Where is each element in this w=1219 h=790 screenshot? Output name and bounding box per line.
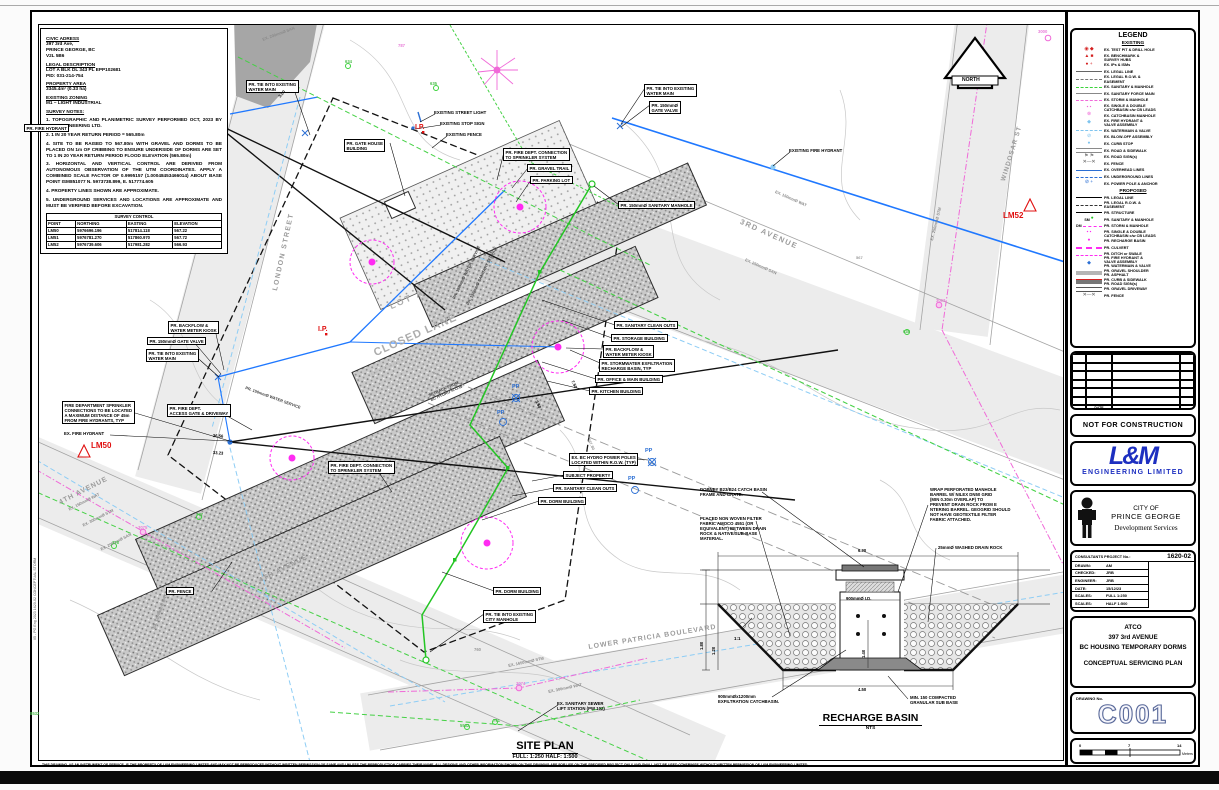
legend-symbol-icon: ● +	[1076, 62, 1102, 68]
plot-stamp: 05 - PG Eng 2023 1620-02 CONCEPTUAL STOR…	[33, 558, 37, 640]
revision-empty-cell	[1086, 371, 1112, 380]
revision-empty-cell	[1112, 380, 1180, 389]
legend-item-label: EX. TEST PIT & DRILL HOLE	[1104, 48, 1155, 52]
detail-dimension: 4.50	[858, 688, 866, 693]
plan-label: 5532	[460, 724, 469, 729]
note-line: PID: 031-214-754	[46, 73, 222, 79]
plan-label: PR. PARKING LOT	[530, 176, 573, 184]
north-label: NORTH	[962, 77, 980, 83]
plan-label: PR. 150mmØ GATE VALVE	[147, 337, 206, 345]
legend-item: PR. CURB & SIDEWALK PR. ROAD SIGN(s)	[1076, 278, 1192, 286]
plan-label: 787	[398, 44, 405, 49]
legend-item-label: EX. FENCE	[1104, 162, 1124, 166]
legend-item-label: EX. UNDERGROUND LINES	[1104, 175, 1153, 179]
plan-label: PR. BACKFLOW & WATER METER KIOSK	[603, 345, 654, 358]
city-mascot-icon	[1076, 496, 1098, 540]
revision-header-cell: NO.	[1072, 405, 1086, 410]
detail-callout: PLACED NON WOVEN FILTER FABRIC AMOCO 455…	[700, 516, 766, 541]
legend-symbol-icon: ◆	[1076, 120, 1102, 126]
legend-item-label: EX. SANITARY & MANHOLE	[1104, 85, 1154, 89]
legend-symbol-icon: ▪ ▪	[1076, 231, 1102, 237]
survey-note: 1. TOPOGRAPHIC AND PLANIMETRIC SURVEY PE…	[46, 117, 222, 129]
consultant-row: DRAWN:AM	[1072, 562, 1148, 570]
legend-symbol-icon: ●	[1076, 141, 1102, 147]
legend-item-label: PR. SINGLE & DOUBLE CATCHBASIN c/w CB LE…	[1104, 230, 1156, 238]
legend-item-label: PR. STRUCTURE	[1104, 211, 1134, 215]
plan-label: 3003	[936, 299, 945, 304]
revision-empty-cell	[1180, 363, 1194, 372]
detail-callout: WRAP PERFORATED MANHOLE BARREL W/ NILEX …	[930, 487, 1010, 522]
legend-item: ▪ ▪EX. SINGLE & DOUBLE CATCHBASIN c/w CB…	[1076, 104, 1192, 112]
revision-empty-cell	[1086, 397, 1112, 406]
revision-empty-cell	[1112, 388, 1180, 397]
revision-empty-cell	[1086, 380, 1112, 389]
city-line2: PRINCE GEORGE	[1102, 512, 1190, 521]
plan-label: 638	[903, 330, 910, 335]
plan-label: PR. SANITARY CLEAN OUTS	[614, 321, 678, 329]
consultants-rows: DRAWN:AMCHECKED:JRBENGINEER:JRBDATE:15/1…	[1072, 562, 1149, 608]
legend-item: ◉ ◆EX. TEST PIT & DRILL HOLE	[1076, 47, 1192, 53]
legend-symbol-icon	[1076, 195, 1102, 201]
plan-label: PR. 150mmØ GATE VALVE	[649, 101, 681, 114]
not-for-construction-stamp: NOT FOR CONSTRUCTION	[1070, 414, 1196, 437]
plan-label: 778	[112, 541, 119, 546]
legend-item-label: PR. GRAVEL SHOULDER PR. ASPHALT	[1104, 269, 1149, 277]
plan-label: 777	[196, 513, 203, 518]
legend-item: SM●PR. SANITARY & MANHOLE	[1076, 217, 1192, 223]
legend-item-label: PR. STORM & MANHOLE	[1104, 224, 1149, 228]
legend-item: PR. CULVERT	[1076, 245, 1192, 251]
legend-symbol-icon	[1076, 77, 1102, 83]
legend-item-label: PR. SANITARY & MANHOLE	[1104, 218, 1154, 222]
legend-existing-heading: EXISTING	[1072, 41, 1194, 46]
legend-symbol-icon: ◆	[1076, 261, 1102, 267]
plan-label: EXISTING STOP SIGN	[440, 121, 485, 126]
revision-empty-cell	[1180, 371, 1194, 380]
plan-label: PP	[497, 410, 504, 416]
plan-label: PR. DORM BUILDING	[493, 587, 541, 595]
consultant-row: DATE:15/12/23	[1072, 585, 1148, 593]
revision-empty-cell	[1180, 397, 1194, 406]
revision-empty-cell	[1072, 354, 1086, 363]
legend-item-label: EX. STORM & MANHOLE	[1104, 98, 1148, 102]
drawing-number: C001	[1072, 701, 1194, 727]
legend-item-label: EX. POWER POLE & ANCHOR	[1104, 182, 1158, 186]
plan-label: PR. OFFICE & MAIN BUILDING	[595, 375, 663, 383]
detail-dimension: 1:1	[734, 636, 741, 641]
legend-item: ✕—✕EX. FENCE	[1076, 161, 1192, 167]
legend-symbol-icon: ▲ ■	[1076, 55, 1102, 61]
legend-symbol-icon: ⊘ +	[1076, 181, 1102, 187]
legend-item: EX. WATERMAIN & VALVE	[1076, 128, 1192, 134]
revision-empty-cell	[1112, 371, 1180, 380]
plan-label: 3074	[516, 682, 525, 687]
legend-item-label: EX. FIRE HYDRANT & VALVE ASSEMBLY	[1104, 119, 1143, 127]
drawing-number-box: DRAWING No. C001	[1070, 692, 1196, 734]
legend-proposed-list: PR. LEGAL LINEPR. LEGAL R.O.W. & EASEMEN…	[1072, 195, 1194, 299]
detail-callout: 25mmØ WASHED DRAIN ROCK	[938, 545, 1002, 550]
project-title-box: ATCO397 3rd AVENUEBC HOUSING TEMPORARY D…	[1070, 616, 1196, 688]
legend-symbol-icon: ⊘	[1076, 135, 1102, 141]
detail-dimension: 1.40	[862, 650, 867, 658]
legend-symbol-icon: DM	[1076, 223, 1102, 229]
plan-label: 3000	[1038, 30, 1047, 35]
revision-empty-cell	[1180, 354, 1194, 363]
legend-symbol-icon	[1076, 128, 1102, 134]
plan-label: PR. FIRE DEPT. CONNECTION TO SPRINKLER S…	[328, 461, 395, 474]
legend-item-label: EX. ROAD SIGN(s)	[1104, 155, 1137, 159]
legend-symbol-icon: SM●	[1076, 217, 1102, 223]
consultants-number: 1620-02	[1167, 553, 1191, 560]
detail-callout: MIN. 150 COMPACTED GRANULAR SUB BASE	[910, 695, 958, 705]
legend-item: EX. LEGAL R.O.W. & EASEMENT	[1076, 75, 1192, 83]
legend-symbol-icon	[1076, 167, 1102, 173]
plan-label: I.P.	[318, 326, 328, 334]
legend-item-label: PR. GRAVEL DRIVEWAY	[1104, 287, 1147, 291]
revision-empty-cell	[1086, 354, 1112, 363]
legend-item-label: EX. BLOW-OFF ASSEMBLY	[1104, 135, 1153, 139]
legend-item: ●PR. RECHARGE BASIN	[1076, 238, 1192, 244]
legend-item: EX. STORM & MANHOLE	[1076, 97, 1192, 103]
plan-label: 634	[345, 60, 352, 65]
plan-label: PR. TIE INTO EXISTING WATER MAIN	[246, 80, 299, 93]
legend-item: ▪ ▪PR. SINGLE & DOUBLE CATCHBASIN c/w CB…	[1076, 230, 1192, 238]
scale-14: 14	[1177, 743, 1182, 748]
revision-empty-cell	[1112, 363, 1180, 372]
plan-label: 567	[856, 256, 863, 261]
legend-item: ◆VALVE ASSEMBLY PR. WATERMAIN & VALVE	[1076, 260, 1192, 268]
plan-label: EXISTING STREET LIGHT	[434, 110, 486, 115]
legend-item: EX. SANITARY & MANHOLE	[1076, 84, 1192, 90]
legend-item: PR. LEGAL R.O.W. & EASEMENT	[1076, 201, 1192, 209]
plan-label: PP	[512, 384, 519, 390]
city-line3: Development Services	[1102, 524, 1190, 532]
plan-label: PP	[645, 448, 652, 454]
scale-unit: Meters	[1182, 752, 1193, 756]
revision-empty-cell	[1086, 388, 1112, 397]
plan-label: 791	[493, 719, 500, 724]
legend-item-label: EX. ROAD & SIDEWALK	[1104, 149, 1147, 153]
plan-label: PR. FENCE	[166, 587, 194, 595]
detail-title-block: RECHARGE BASIN NTS	[798, 708, 943, 731]
plan-label: EX. SANITARY SEWER LIFT STATION (PW 102)	[557, 701, 605, 711]
scale-0: 0	[1079, 743, 1082, 748]
revision-table: NO.DATE (D/M/Y)REVISIONBY	[1070, 351, 1196, 410]
legend-item-label: EX. BENCHMARK & SURVEY HUBS	[1104, 54, 1139, 62]
plan-label: PR. KITCHEN BUILDING	[589, 387, 643, 395]
survey-control-table: SURVEY CONTROLPOINTNORTHINGEASTINGELEVAT…	[46, 213, 222, 249]
revision-header-cell: REVISION	[1112, 405, 1180, 410]
legend-item-label: PR. LEGAL LINE	[1104, 196, 1134, 200]
plan-label: EXISTING FENCE	[446, 132, 482, 137]
revision-empty-cell	[1072, 397, 1086, 406]
legend-symbol-icon: ●	[1076, 238, 1102, 244]
legend-symbol-icon	[1076, 253, 1102, 259]
scale-bar-box: 0 7 14 Meters	[1070, 738, 1196, 764]
revision-grid: NO.DATE (D/M/Y)REVISIONBY	[1072, 353, 1194, 410]
plan-label: 8532	[30, 712, 39, 717]
consultant-row: ENGINEER:JRB	[1072, 577, 1148, 585]
legend-symbol-icon: ▪ ▪	[1076, 105, 1102, 111]
legend-symbol-icon	[1076, 97, 1102, 103]
legend-item: EX. ROAD & SIDEWALK	[1076, 148, 1192, 154]
consultant-row: SCALES:HALF 1:500	[1072, 600, 1148, 608]
legend-item-label: PR. CURB & SIDEWALK PR. ROAD SIGN(s)	[1104, 278, 1147, 286]
plan-label: PR. STORAGE BUILDING	[611, 334, 668, 342]
detail-dimension: 1.80	[700, 642, 705, 650]
note-line: 3345.4m² (0.33 ha)	[46, 86, 222, 92]
legend-item: PR. STRUCTURE	[1076, 210, 1192, 216]
plan-label: PR. BACKFLOW & WATER METER KIOSK	[168, 321, 219, 334]
notes-panel: CIVIC ADRESS397 3rd Ave,PRINCE GEORGE, B…	[40, 28, 228, 254]
legend-item: ✕—✕PR. FENCE	[1076, 293, 1192, 299]
detail-dimension: 6.90	[858, 549, 866, 554]
site-plan-title: SITE PLAN	[512, 740, 577, 754]
consultant-row: CHECKED:JRB	[1072, 570, 1148, 578]
city-line1: CITY OF	[1102, 505, 1190, 512]
plan-label: LM50	[91, 441, 111, 450]
legend-item-label: PR. DITCH or SWALE PR. FIRE HYDRANT &	[1104, 252, 1143, 260]
site-plan-title-block: SITE PLAN FULL: 1:250 HALF: 1:500	[475, 736, 615, 760]
legend-item-label: VALVE ASSEMBLY PR. WATERMAIN & VALVE	[1104, 260, 1151, 268]
legend-symbol-icon	[1076, 279, 1102, 285]
legend-item-label: PR. RECHARGE BASIN	[1104, 239, 1145, 243]
plan-label: 3075	[138, 526, 147, 531]
legend-proposed-heading: PROPOSED	[1072, 189, 1194, 194]
consultants-empty-cell	[1149, 562, 1194, 608]
plan-label: PR. TIE INTO EXISTING WATER MAIN	[644, 84, 697, 97]
plan-label: EX. BC HYDRO POWER POLES LOCATED WITHIN …	[569, 453, 638, 466]
scale-bar: 0 7 14 Meters	[1072, 740, 1194, 762]
legend-existing-list: ◉ ◆EX. TEST PIT & DRILL HOLE▲ ■EX. BENCH…	[1072, 47, 1194, 187]
plan-label: I.P.	[415, 124, 425, 132]
legend-symbol-icon: ◉ ◆	[1076, 47, 1102, 53]
plan-label: PR. FIRE DEPT. ACCESS GATE & DRIVEWAY	[167, 404, 231, 417]
revision-empty-cell	[1072, 388, 1086, 397]
legend-symbol-icon	[1076, 69, 1102, 75]
project-line: BC HOUSING TEMPORARY DORMS	[1072, 643, 1194, 653]
revision-empty-cell	[1072, 380, 1086, 389]
firm-name: ENGINEERING LIMITED	[1072, 469, 1194, 476]
project-lines: ATCO397 3rd AVENUEBC HOUSING TEMPORARY D…	[1072, 618, 1194, 669]
legend-item-label: EX. CURB STOP	[1104, 142, 1133, 146]
plan-label: PR. STORMWATER EXFILTRATION RECHARGE BAS…	[599, 359, 675, 372]
plan-label: PR. 150mmØ SANITARY MANHOLE	[618, 201, 695, 209]
plan-label: PP	[628, 476, 635, 482]
legend-item-label: PR. CULVERT	[1104, 246, 1129, 250]
legend-item: ● +EX. IPs & ISMs	[1076, 62, 1192, 68]
legend-item-label: PR. LEGAL R.O.W. & EASEMENT	[1104, 201, 1141, 209]
consultants-label: CONSULTANTS PROJECT No.:	[1075, 555, 1131, 559]
legend-item: ⊗EX. CATCHBASIN MANHOLE	[1076, 113, 1192, 119]
legend-item: EX. LEGAL LINE	[1076, 69, 1192, 75]
plan-label: PR. FIRE HYDRANT	[24, 124, 69, 132]
plan-label: EX. FIRE HYDRANT	[64, 431, 104, 436]
plan-label: PR. DORM BUILDING	[538, 497, 586, 505]
firm-logo: L&M	[1072, 444, 1194, 469]
plan-label: PR. FIRE DEPT. CONNECTION TO SPRINKLER S…	[503, 148, 570, 161]
project-line: 397 3rd AVENUE	[1072, 633, 1194, 643]
revision-empty-cell	[1072, 363, 1086, 372]
revision-empty-cell	[1180, 388, 1194, 397]
legend-symbol-icon	[1076, 84, 1102, 90]
project-line: ATCO	[1072, 623, 1194, 633]
plan-label: PR. GATE HOUSE BUILDING	[344, 139, 385, 152]
legend-symbol-icon	[1076, 245, 1102, 251]
legend-symbol-icon: ⊗	[1076, 113, 1102, 119]
legend-item-label: EX. LEGAL R.O.W. & EASEMENT	[1104, 75, 1141, 83]
legend-item: DMPR. STORM & MANHOLE	[1076, 223, 1192, 229]
legend-symbol-icon	[1076, 148, 1102, 154]
legend-title: LEGEND	[1072, 32, 1194, 39]
legend-symbol-icon: ✕—✕	[1076, 293, 1102, 299]
plan-label: LM52	[1003, 211, 1023, 220]
detail-dimension: 1.20	[712, 647, 717, 655]
legend-item: ●EX. CURB STOP	[1076, 141, 1192, 147]
legend-item-label: EX. SANITARY FORCE MAIN	[1104, 92, 1155, 96]
revision-empty-cell	[1180, 380, 1194, 389]
legend-item-label: PR. FENCE	[1104, 294, 1124, 298]
legend-item-label: EX. OVERHEAD LINES	[1104, 168, 1144, 172]
drawing-sheet: NORTH CIVIC ADRESS397 3rd Ave,PRINCE GEO…	[0, 0, 1219, 790]
plan-label: 635	[430, 82, 437, 87]
detail-callout: 900mmØx1200mm EXFILTRATION CATCHBASIN.	[718, 694, 779, 704]
legend-item: ◆EX. FIRE HYDRANT & VALVE ASSEMBLY	[1076, 119, 1192, 127]
survey-note: 4. SITE TO BE RAISED TO 567.80m WITH GRA…	[46, 141, 222, 159]
note-heading: SURVEY NOTES:	[46, 109, 222, 114]
legend-symbol-icon: ✕—✕	[1076, 161, 1102, 167]
site-plan-scale: FULL: 1:250 HALF: 1:500	[475, 754, 615, 760]
legend-symbol-icon	[1076, 91, 1102, 97]
legend-item: ⊘ +EX. POWER POLE & ANCHOR	[1076, 181, 1192, 187]
detail-title: RECHARGE BASIN	[819, 712, 923, 726]
plan-label: PR. TIE INTO EXISTING CITY MANHOLE	[483, 610, 536, 623]
legend-panel: LEGEND EXISTING ◉ ◆EX. TEST PIT & DRILL …	[1070, 28, 1196, 348]
legend-item-label: EX. CATCHBASIN MANHOLE	[1104, 114, 1156, 118]
survey-note: 4. PROPERTY LINES SHOWN ARE APPROXIMATE.	[46, 188, 222, 194]
survey-note: 2. 1 IN 20 YEAR RETURN PERIOD = 565.80m	[46, 132, 222, 138]
city-box: CITY OF PRINCE GEORGE Development Servic…	[1070, 490, 1196, 546]
revision-header-cell: BY	[1180, 405, 1194, 410]
firm-logo-box: L&M ENGINEERING LIMITED	[1070, 441, 1196, 486]
legend-symbol-icon	[1076, 210, 1102, 216]
revision-empty-cell	[1072, 371, 1086, 380]
note-line: V2L 5B6	[46, 53, 222, 59]
plan-label: 33.23	[213, 451, 224, 457]
legend-item: PR. LEGAL LINE	[1076, 195, 1192, 201]
plan-label: PR. TIE INTO EXISTING WATER MAIN	[146, 349, 199, 362]
legend-symbol-icon	[1076, 202, 1102, 208]
detail-dimension: 900mmØ I.D.	[846, 597, 871, 602]
legend-item: PR. DITCH or SWALE PR. FIRE HYDRANT &	[1076, 252, 1192, 260]
legend-symbol-icon	[1076, 270, 1102, 276]
consultants-box: CONSULTANTS PROJECT No.: 1620-02 DRAWN:A…	[1070, 550, 1196, 612]
plan-label: PR. SANITARY CLEAN OUTS	[553, 484, 617, 492]
survey-note: 5. UNDERGROUND SERVICES AND LOCATIONS AR…	[46, 197, 222, 209]
plan-label: FIRE DEPARTMENT SPRINKLER CONNECTIONS TO…	[62, 401, 135, 424]
nfc-text: NOT FOR CONSTRUCTION	[1072, 416, 1194, 429]
disclaimer-text: THIS DRAWING, AS AN INSTRUMENT OF SERVIC…	[42, 763, 1060, 767]
revision-empty-cell	[1112, 397, 1180, 406]
detail-callout: DOBNEY B23/B24 CATCH BASIN FRAME AND GRA…	[700, 487, 767, 497]
legend-item: ⊘EX. BLOW-OFF ASSEMBLY	[1076, 135, 1192, 141]
plan-label: PR. GRAVEL TRAIL	[527, 164, 572, 172]
note-line: M1 – LIGHT INDUSTRIAL	[46, 100, 222, 106]
revision-empty-cell	[1086, 363, 1112, 372]
legend-symbol-icon	[1076, 286, 1102, 292]
survey-note: 3. HORIZONTAL AND VERTICAL CONTROL ARE D…	[46, 161, 222, 185]
plan-label: EXISTING FIRE HYDRANT	[789, 148, 842, 153]
legend-item: PR. GRAVEL SHOULDER PR. ASPHALT	[1076, 269, 1192, 277]
notes-sections: CIVIC ADRESS397 3rd Ave,PRINCE GEORGE, B…	[46, 36, 222, 209]
revision-empty-cell	[1112, 354, 1180, 363]
plan-label: SUBJECT PROPERTY	[563, 471, 613, 479]
legend-item: ▲ ■EX. BENCHMARK & SURVEY HUBS	[1076, 54, 1192, 62]
legend-item: PR. GRAVEL DRIVEWAY	[1076, 286, 1192, 292]
scale-7: 7	[1128, 743, 1131, 748]
legend-item-label: EX. SINGLE & DOUBLE CATCHBASIN c/w CB LE…	[1104, 104, 1156, 112]
legend-item: EX. UNDERGROUND LINES	[1076, 174, 1192, 180]
legend-item-label: EX. IPs & ISMs	[1104, 63, 1130, 67]
legend-item-label: EX. WATERMAIN & VALVE	[1104, 129, 1151, 133]
plan-label: 760	[474, 648, 481, 653]
legend-item: EX. SANITARY FORCE MAIN	[1076, 91, 1192, 97]
plan-label: 36.56	[213, 434, 224, 440]
consultant-row: SCALES:FULL 1:250	[1072, 592, 1148, 600]
storm-node-star	[478, 50, 518, 90]
project-line: CONCEPTUAL SERVICING PLAN	[1072, 659, 1194, 669]
legend-item: EX. OVERHEAD LINES	[1076, 167, 1192, 173]
legend-item-label: EX. LEGAL LINE	[1104, 70, 1133, 74]
detail-scale: NTS	[798, 726, 943, 731]
revision-header-cell: DATE (D/M/Y)	[1086, 405, 1112, 410]
